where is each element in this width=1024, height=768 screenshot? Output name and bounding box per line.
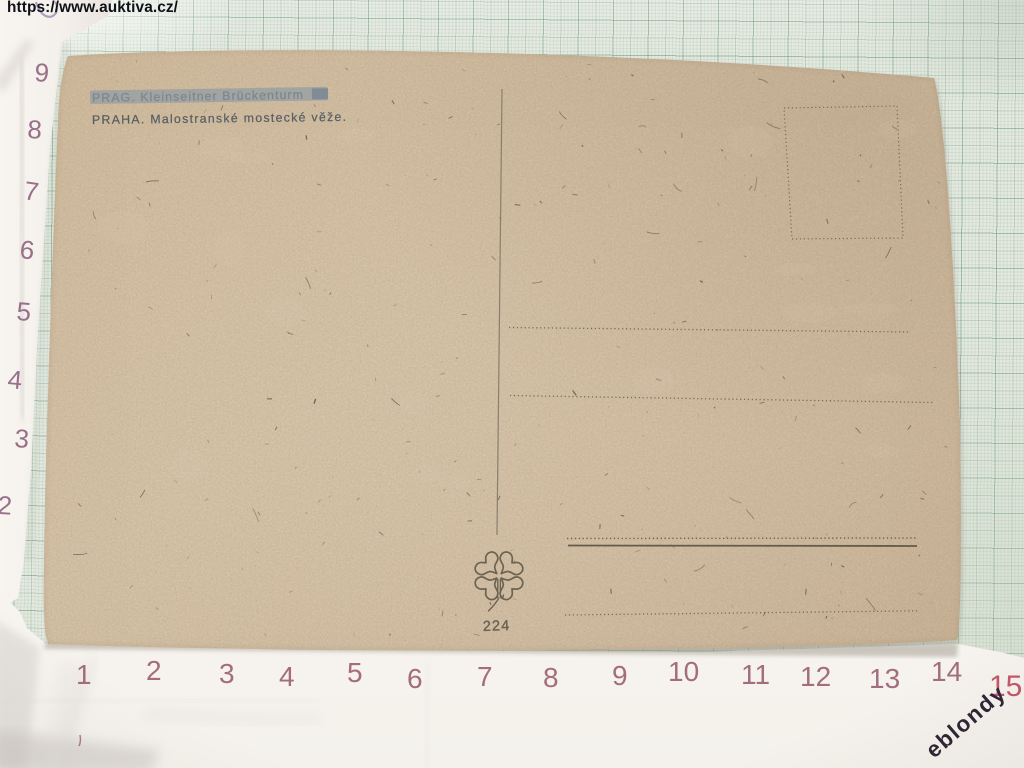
svg-text:https://www.auktiva.cz/: https://www.auktiva.cz/ [7,0,179,16]
